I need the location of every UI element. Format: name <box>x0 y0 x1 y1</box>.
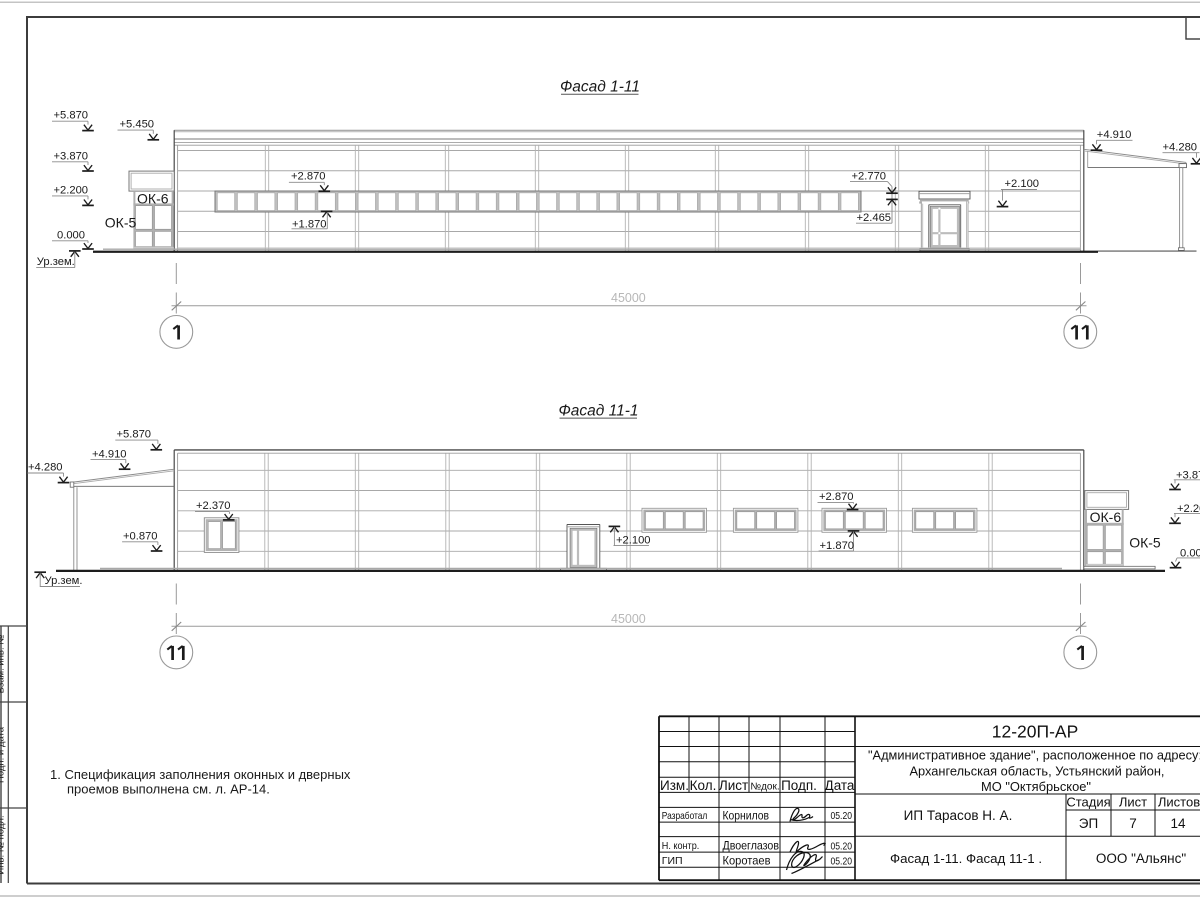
svg-text:ОК-5: ОК-5 <box>1129 534 1161 550</box>
svg-text:Коротаев: Коротаев <box>723 854 771 868</box>
svg-text:ИП Тарасов Н. А.: ИП Тарасов Н. А. <box>904 808 1013 823</box>
svg-text:+4.910: +4.910 <box>1097 129 1132 141</box>
svg-text:Дата: Дата <box>825 778 855 793</box>
svg-text:+2.200: +2.200 <box>54 184 89 196</box>
svg-text:МО "Октябрьское": МО "Октябрьское" <box>981 780 1091 794</box>
svg-text:Двоеглазов: Двоеглазов <box>723 839 780 853</box>
svg-text:Архангельская область, Устьянс: Архангельская область, Устьянский район, <box>910 764 1165 778</box>
svg-text:Корнилов: Корнилов <box>723 809 770 823</box>
svg-text:Листов: Листов <box>1158 794 1200 809</box>
svg-text:Взам. инв. №: Взам. инв. № <box>0 635 7 694</box>
svg-text:Фасад 1-11: Фасад 1-11 <box>560 79 640 96</box>
svg-text:45000: 45000 <box>611 612 646 626</box>
svg-text:+5.450: +5.450 <box>120 119 155 131</box>
svg-text:+2.100: +2.100 <box>616 534 651 546</box>
svg-text:№док.: №док. <box>750 782 779 793</box>
svg-text:проемов выполнена см. л. АР-14: проемов выполнена см. л. АР-14. <box>67 782 270 797</box>
svg-text:Разработал: Разработал <box>662 810 708 822</box>
svg-text:14: 14 <box>1170 816 1186 831</box>
svg-text:ООО "Альянс": ООО "Альянс" <box>1096 851 1186 866</box>
svg-text:+3.870: +3.870 <box>54 150 89 162</box>
svg-text:+2.100: +2.100 <box>1005 178 1040 190</box>
svg-text:+1.870: +1.870 <box>820 540 855 552</box>
svg-text:+4.910: +4.910 <box>92 449 127 461</box>
svg-text:+4.280: +4.280 <box>1163 141 1198 153</box>
svg-text:+2.465: +2.465 <box>857 212 892 224</box>
svg-text:0.000: 0.000 <box>57 229 85 241</box>
svg-text:Инв. № подл.: Инв. № подл. <box>0 815 7 874</box>
svg-text:Изм.: Изм. <box>660 778 689 793</box>
svg-text:+2.870: +2.870 <box>291 171 326 183</box>
svg-text:Подп. и дата: Подп. и дата <box>0 726 7 783</box>
svg-text:Лист: Лист <box>719 778 748 793</box>
svg-text:Стадия: Стадия <box>1066 794 1110 809</box>
svg-text:Фасад 1-11. Фасад 11-1 .: Фасад 1-11. Фасад 11-1 . <box>890 851 1042 866</box>
svg-text:+2.770: +2.770 <box>852 170 887 182</box>
svg-text:+0.870: +0.870 <box>123 531 158 543</box>
svg-text:Н. контр.: Н. контр. <box>662 840 700 852</box>
svg-text:ОК-6: ОК-6 <box>1090 509 1122 525</box>
svg-text:12-20П-АР: 12-20П-АР <box>992 721 1079 741</box>
svg-text:Лист: Лист <box>1119 794 1147 809</box>
svg-text:Ур.зем.: Ур.зем. <box>45 575 83 587</box>
svg-text:+5.870: +5.870 <box>54 110 89 122</box>
svg-text:+2.370: +2.370 <box>196 500 231 512</box>
svg-text:+5.870: +5.870 <box>117 429 152 441</box>
svg-text:+4.280: +4.280 <box>28 462 63 474</box>
svg-text:+2.870: +2.870 <box>819 491 854 503</box>
svg-text:05.20: 05.20 <box>831 810 853 822</box>
svg-text:05.20: 05.20 <box>831 855 853 867</box>
svg-text:ЭП: ЭП <box>1079 816 1098 831</box>
svg-text:Фасад 11-1: Фасад 11-1 <box>558 402 638 419</box>
svg-text:"Административное здание", рас: "Административное здание", расположенное… <box>868 749 1200 763</box>
svg-text:Ур.зем.: Ур.зем. <box>37 256 75 268</box>
svg-text:45000: 45000 <box>611 291 646 305</box>
svg-text:Подп.: Подп. <box>781 778 817 793</box>
svg-text:ОК-5: ОК-5 <box>105 214 137 230</box>
svg-text:Кол.: Кол. <box>690 778 717 793</box>
svg-text:ГИП: ГИП <box>662 855 683 867</box>
svg-text:1. Спецификация заполнения око: 1. Спецификация заполнения оконных и две… <box>50 767 351 782</box>
svg-text:7: 7 <box>1129 816 1137 831</box>
svg-text:05.20: 05.20 <box>831 840 853 852</box>
